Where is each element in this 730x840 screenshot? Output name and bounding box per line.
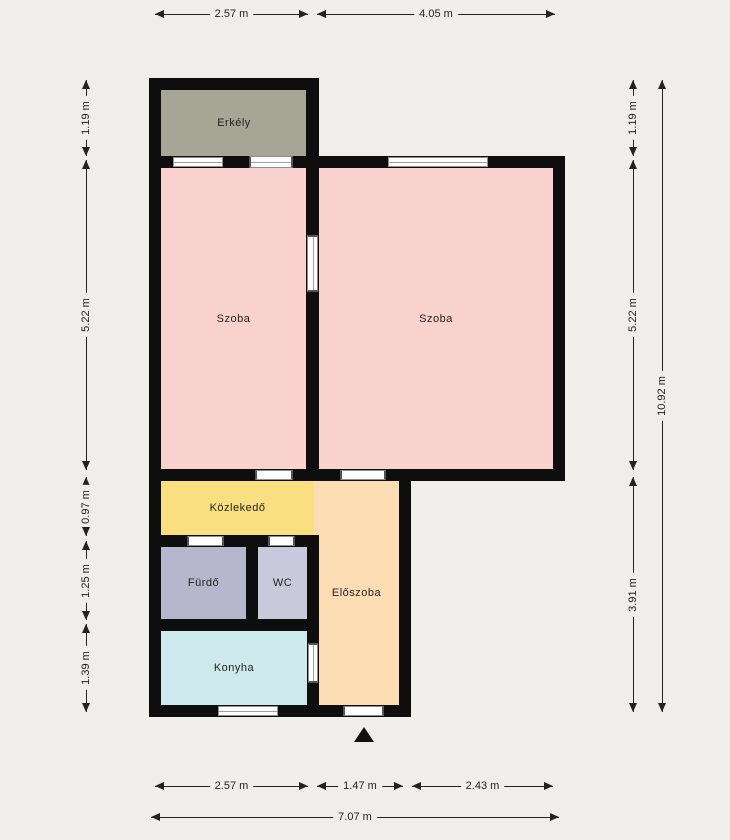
dimension-right-total: 10.92 m (655, 80, 669, 712)
room-label-szoba-left: Szoba (217, 313, 251, 325)
dimension-left-1: 1.19 m (79, 80, 93, 156)
dimension-label: 4.05 m (414, 8, 458, 20)
dimension-left-3: 0.97 m (79, 477, 93, 536)
dimension-label: 1.25 m (80, 559, 92, 603)
floorplan-canvas: Erkély Szoba Szoba Közlekedő Előszoba Fü… (0, 0, 730, 840)
door-szoba-right (340, 470, 386, 480)
room-kozlekedo: Közlekedő (161, 481, 314, 535)
dimension-label: 10.92 m (656, 371, 668, 421)
dimension-label: 5.22 m (80, 293, 92, 337)
dimension-label: 1.19 m (80, 96, 92, 140)
window-szoba-left (173, 157, 223, 167)
dimension-label: 5.22 m (627, 293, 639, 337)
dimension-top-2: 4.05 m (317, 7, 555, 21)
dimension-label: 2.57 m (210, 780, 254, 792)
room-szoba-right: Szoba (319, 168, 553, 469)
room-label-erkely: Erkély (217, 117, 251, 129)
dimension-label: 7.07 m (333, 811, 377, 823)
room-label-kozlekedo: Közlekedő (210, 502, 266, 514)
dimension-right-3: 3.91 m (626, 477, 640, 712)
room-label-szoba-right: Szoba (419, 313, 453, 325)
wall-balcony-top (149, 78, 319, 90)
dimension-label: 3.91 m (627, 573, 639, 617)
room-wc: WC (258, 547, 307, 619)
dimension-label: 0.97 m (80, 485, 92, 529)
door-furdo (187, 536, 224, 546)
room-label-wc: WC (273, 577, 292, 589)
wall-outer-right-upper (553, 156, 565, 481)
room-erkely: Erkély (161, 90, 307, 156)
dimension-left-5: 1.39 m (79, 624, 93, 712)
wall-furdo-wc (246, 547, 258, 619)
door-balcony (249, 156, 293, 168)
door-entrance (343, 706, 384, 716)
door-wc (268, 536, 295, 546)
dimension-label: 1.39 m (80, 646, 92, 690)
room-eloszoba: Előszoba (314, 481, 399, 705)
room-szoba-left: Szoba (161, 168, 306, 469)
dimension-label: 2.43 m (461, 780, 505, 792)
dimension-label: 1.19 m (627, 96, 639, 140)
dimension-left-2: 5.22 m (79, 160, 93, 470)
room-furdo: Fürdő (161, 547, 246, 619)
room-label-eloszoba: Előszoba (332, 587, 381, 599)
wall-kozlekedo-top (149, 469, 319, 481)
room-konyha: Konyha (161, 631, 307, 705)
dimension-label: 1.47 m (338, 780, 382, 792)
room-label-furdo: Fürdő (188, 577, 219, 589)
dimension-left-4: 1.25 m (79, 541, 93, 620)
room-label-konyha: Konyha (214, 662, 254, 674)
dimension-top-1: 2.57 m (155, 7, 308, 21)
dimension-label: 2.57 m (210, 8, 254, 20)
dimension-bottom-2: 1.47 m (317, 779, 403, 793)
door-szoba-left (255, 470, 293, 480)
dimension-bottom-3: 2.43 m (412, 779, 553, 793)
window-szoba-right (388, 157, 488, 167)
entrance-arrow-icon (354, 727, 374, 742)
dimension-bottom-1: 2.57 m (155, 779, 308, 793)
wall-outer-right-lower (399, 469, 411, 717)
dimension-right-2: 5.22 m (626, 160, 640, 470)
dimension-bottom-total: 7.07 m (151, 810, 559, 824)
wall-konyha-top (149, 619, 319, 631)
door-between-szoba (307, 235, 318, 292)
door-konyha (308, 643, 318, 683)
window-konyha (218, 706, 278, 716)
dimension-right-1: 1.19 m (626, 80, 640, 156)
